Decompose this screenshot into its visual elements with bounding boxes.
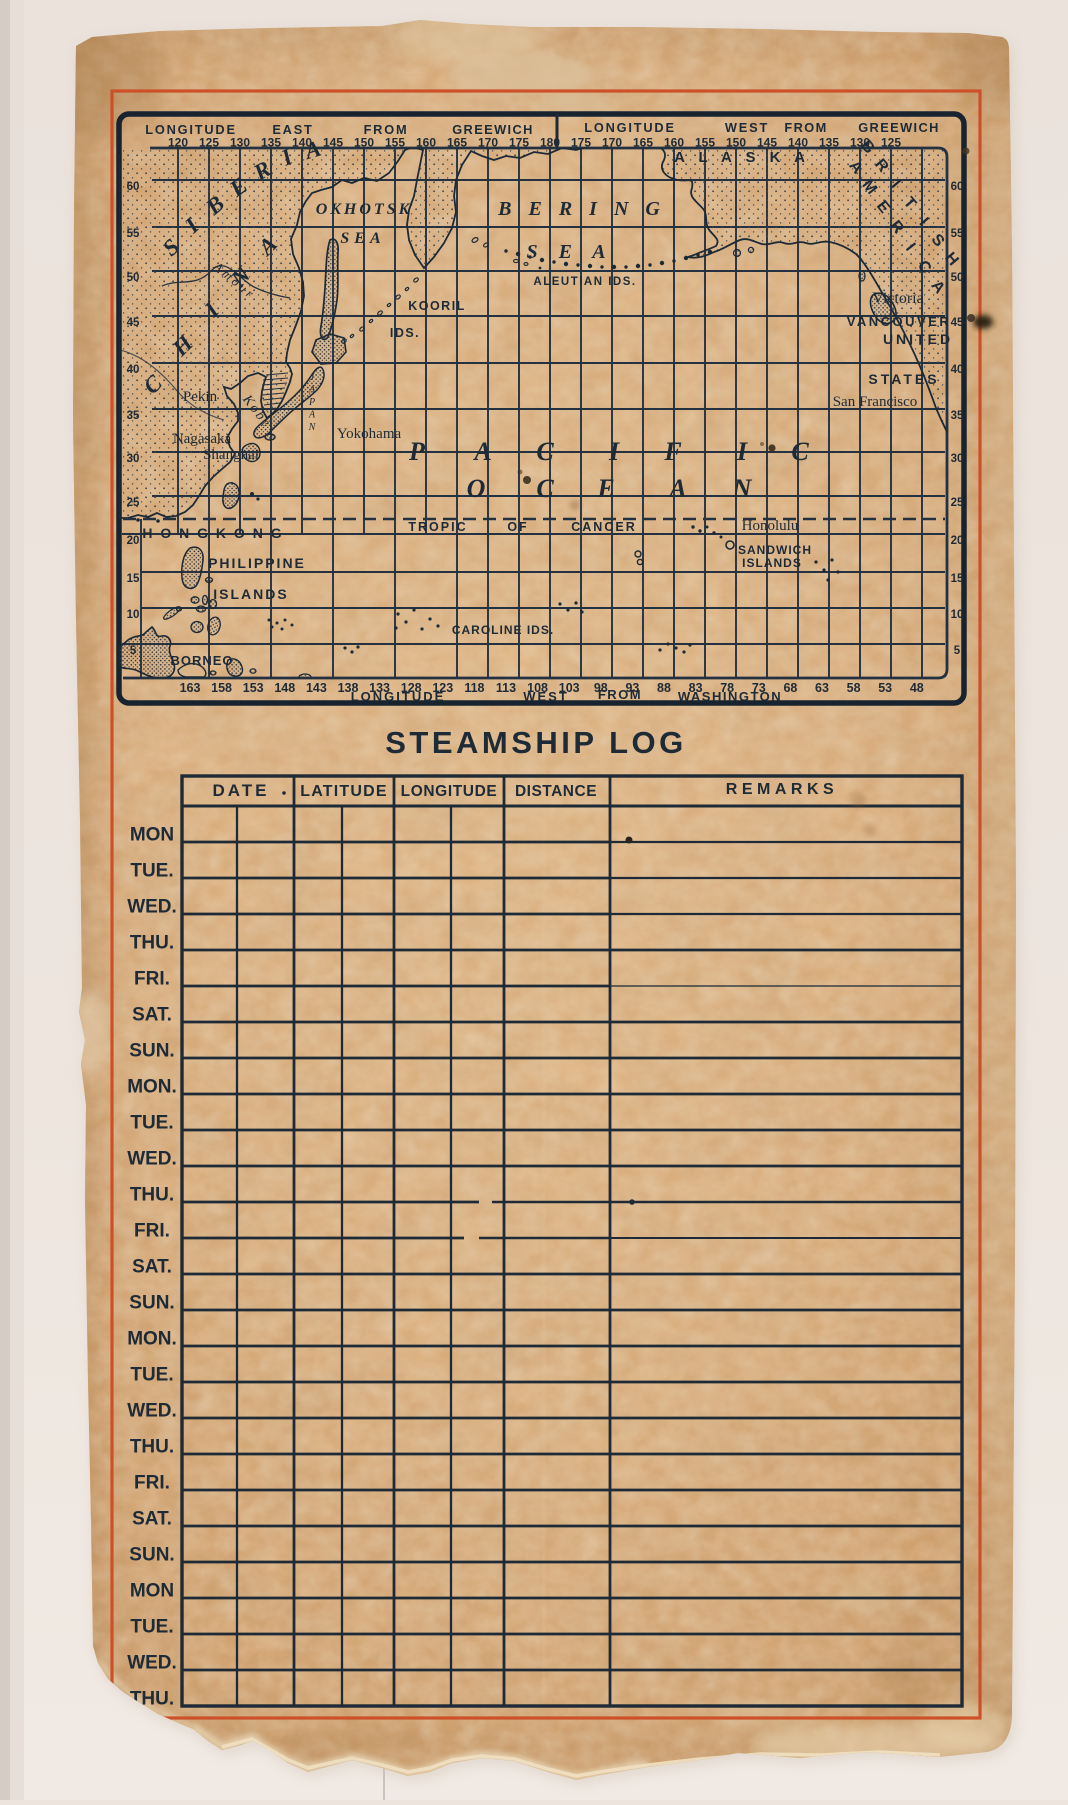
svg-text:63: 63 (815, 681, 829, 695)
svg-text:68: 68 (783, 681, 797, 695)
svg-text:135: 135 (819, 136, 839, 150)
svg-text:WED.: WED. (127, 1401, 177, 1422)
svg-text:LONGITUDE: LONGITUDE (351, 689, 446, 704)
svg-text:118: 118 (464, 681, 484, 695)
svg-text:LATITUDE: LATITUDE (300, 783, 388, 800)
svg-text:113: 113 (496, 681, 516, 695)
svg-text:130: 130 (230, 136, 250, 150)
svg-text:25: 25 (951, 497, 964, 509)
svg-text:CAROLINE IDS.: CAROLINE IDS. (452, 623, 554, 637)
svg-text:10: 10 (127, 609, 140, 621)
svg-text:THU.: THU. (130, 933, 174, 954)
svg-text:160: 160 (416, 136, 436, 150)
svg-text:P: P (408, 437, 426, 466)
svg-text:LONGITUDE: LONGITUDE (401, 783, 498, 800)
svg-text:50: 50 (127, 272, 140, 284)
svg-text:175: 175 (509, 136, 529, 150)
svg-text:MON: MON (130, 1581, 174, 1602)
svg-text:H O N G K O N G: H O N G K O N G (142, 525, 283, 541)
svg-text:15: 15 (127, 573, 140, 585)
svg-text:35: 35 (951, 410, 964, 422)
svg-text:A: A (308, 410, 316, 421)
svg-text:ISLANDS: ISLANDS (742, 556, 802, 570)
svg-text:SANDWICH: SANDWICH (738, 543, 812, 557)
svg-text:165: 165 (633, 136, 653, 150)
svg-text:30: 30 (127, 453, 140, 465)
svg-text:40: 40 (951, 364, 964, 376)
svg-text:DATE: DATE (212, 781, 269, 800)
svg-text:143: 143 (306, 681, 327, 695)
svg-text:55: 55 (951, 228, 964, 240)
svg-text:125: 125 (199, 136, 219, 150)
svg-text:TUE.: TUE. (130, 861, 173, 882)
svg-text:C: C (536, 437, 554, 466)
svg-text:58: 58 (847, 681, 861, 695)
svg-text:WED.: WED. (127, 1149, 177, 1170)
svg-text:P: P (308, 397, 315, 408)
svg-text:A: A (472, 437, 491, 466)
svg-text:WASHINGTON: WASHINGTON (678, 689, 782, 704)
svg-text:Yokohama: Yokohama (337, 426, 402, 442)
svg-text:180: 180 (540, 136, 560, 150)
svg-text:WED.: WED. (127, 897, 177, 918)
svg-text:THU.: THU. (130, 1437, 174, 1458)
svg-text:GREEWICH: GREEWICH (858, 120, 940, 135)
svg-text:WEST: WEST (523, 689, 569, 704)
svg-text:55: 55 (127, 228, 140, 240)
svg-text:Pekin: Pekin (183, 389, 218, 405)
svg-text:FROM: FROM (784, 120, 827, 135)
svg-text:158: 158 (211, 681, 232, 695)
svg-text:SAT.: SAT. (132, 1005, 172, 1026)
svg-text:25: 25 (127, 497, 140, 509)
svg-text:148: 148 (274, 681, 295, 695)
svg-text:Nagasaka: Nagasaka (173, 431, 232, 447)
svg-text:20: 20 (127, 535, 140, 547)
svg-text:IDS.: IDS. (390, 326, 420, 340)
svg-text:TUE.: TUE. (130, 1113, 173, 1134)
svg-text:SUN.: SUN. (129, 1041, 174, 1062)
svg-text:LONGITUDE: LONGITUDE (584, 120, 676, 135)
svg-text:53: 53 (878, 681, 892, 695)
svg-text:35: 35 (127, 410, 140, 422)
svg-text:S E A: S E A (526, 241, 613, 263)
svg-text:WEST: WEST (725, 120, 769, 135)
svg-text:FRI.: FRI. (134, 969, 170, 990)
svg-text:15: 15 (951, 573, 964, 585)
svg-text:A: A (667, 474, 686, 503)
svg-text:30: 30 (951, 453, 964, 465)
svg-text:ISLANDS: ISLANDS (213, 586, 288, 602)
svg-text:ALEUTIAN IDS.: ALEUTIAN IDS. (533, 276, 636, 288)
svg-text:FROM: FROM (598, 687, 642, 702)
svg-text:Shanghai: Shanghai (203, 447, 259, 463)
svg-text:5: 5 (954, 645, 961, 657)
svg-text:88: 88 (657, 681, 671, 695)
svg-text:PHILIPPINE: PHILIPPINE (208, 555, 306, 571)
svg-text:153: 153 (243, 681, 264, 695)
svg-text:155: 155 (385, 136, 405, 150)
svg-text:THU.: THU. (130, 1185, 174, 1206)
svg-text:BORNEO: BORNEO (170, 653, 233, 668)
svg-text:TUE.: TUE. (130, 1365, 173, 1386)
svg-text:C: C (791, 437, 809, 466)
svg-text:10: 10 (951, 609, 964, 621)
svg-text:N: N (732, 474, 753, 503)
svg-text:20: 20 (951, 535, 964, 547)
svg-text:150: 150 (354, 136, 374, 150)
svg-text:CANCER: CANCER (571, 520, 636, 534)
svg-text:WED.: WED. (127, 1653, 177, 1674)
svg-text:UNITED: UNITED (883, 331, 953, 347)
svg-text:OKHOTSK: OKHOTSK (316, 201, 413, 218)
svg-text:E: E (596, 474, 614, 503)
svg-text:48: 48 (910, 681, 924, 695)
svg-text:N: N (308, 422, 317, 433)
svg-text:VANCOUVER: VANCOUVER (847, 314, 952, 329)
svg-text:60: 60 (951, 181, 964, 193)
svg-text:155: 155 (695, 136, 715, 150)
svg-text:50: 50 (951, 272, 964, 284)
svg-text:170: 170 (602, 136, 622, 150)
svg-text:175: 175 (571, 136, 591, 150)
svg-text:165: 165 (447, 136, 467, 150)
svg-text:FRI.: FRI. (134, 1221, 170, 1242)
svg-text:DISTANCE: DISTANCE (515, 783, 597, 800)
svg-text:STEAMSHIP LOG: STEAMSHIP LOG (385, 725, 687, 760)
svg-text:160: 160 (664, 136, 684, 150)
svg-text:TUE.: TUE. (130, 1617, 173, 1638)
svg-text:B E R I N G: B E R I N G (497, 198, 666, 220)
svg-text:163: 163 (180, 681, 201, 695)
svg-text:120: 120 (168, 136, 188, 150)
svg-text:San Francisco: San Francisco (833, 394, 918, 410)
svg-text:STATES: STATES (868, 371, 939, 387)
svg-text:MON.: MON. (127, 1077, 177, 1098)
svg-text:45: 45 (127, 317, 140, 329)
svg-text:F: F (663, 437, 681, 466)
svg-text:60: 60 (127, 181, 140, 193)
svg-text:45: 45 (951, 317, 964, 329)
svg-text:LONGITUDE: LONGITUDE (145, 122, 237, 137)
svg-text:140: 140 (788, 136, 808, 150)
svg-text:Honolulu: Honolulu (742, 518, 799, 534)
svg-text:OF: OF (507, 520, 528, 534)
svg-text:SEA: SEA (340, 230, 385, 247)
svg-text:5: 5 (130, 645, 137, 657)
svg-text:145: 145 (757, 136, 777, 150)
svg-text:MON.: MON. (127, 1329, 177, 1350)
svg-text:Victoria: Victoria (872, 290, 923, 307)
svg-text:C: C (536, 474, 554, 503)
svg-text:170: 170 (478, 136, 498, 150)
svg-text:O: O (467, 474, 486, 503)
svg-text:SAT.: SAT. (132, 1257, 172, 1278)
svg-text:REMARKS: REMARKS (726, 781, 838, 798)
svg-text:FRI.: FRI. (134, 1473, 170, 1494)
svg-text:SUN.: SUN. (129, 1545, 174, 1566)
svg-text:I: I (608, 437, 620, 466)
svg-text:150: 150 (726, 136, 746, 150)
svg-text:A: A (308, 385, 316, 396)
svg-text:MON: MON (130, 825, 174, 846)
svg-text:J: J (310, 372, 315, 383)
svg-text:KOORIL: KOORIL (408, 299, 466, 313)
svg-text:145: 145 (323, 136, 343, 150)
svg-text:125: 125 (881, 136, 901, 150)
svg-text:SAT.: SAT. (132, 1509, 172, 1530)
svg-text:A L A S K A: A L A S K A (674, 149, 810, 166)
svg-text:I: I (736, 437, 748, 466)
svg-text:TROPIC: TROPIC (408, 520, 467, 534)
svg-text:SUN.: SUN. (129, 1293, 174, 1314)
svg-text:40: 40 (127, 364, 140, 376)
